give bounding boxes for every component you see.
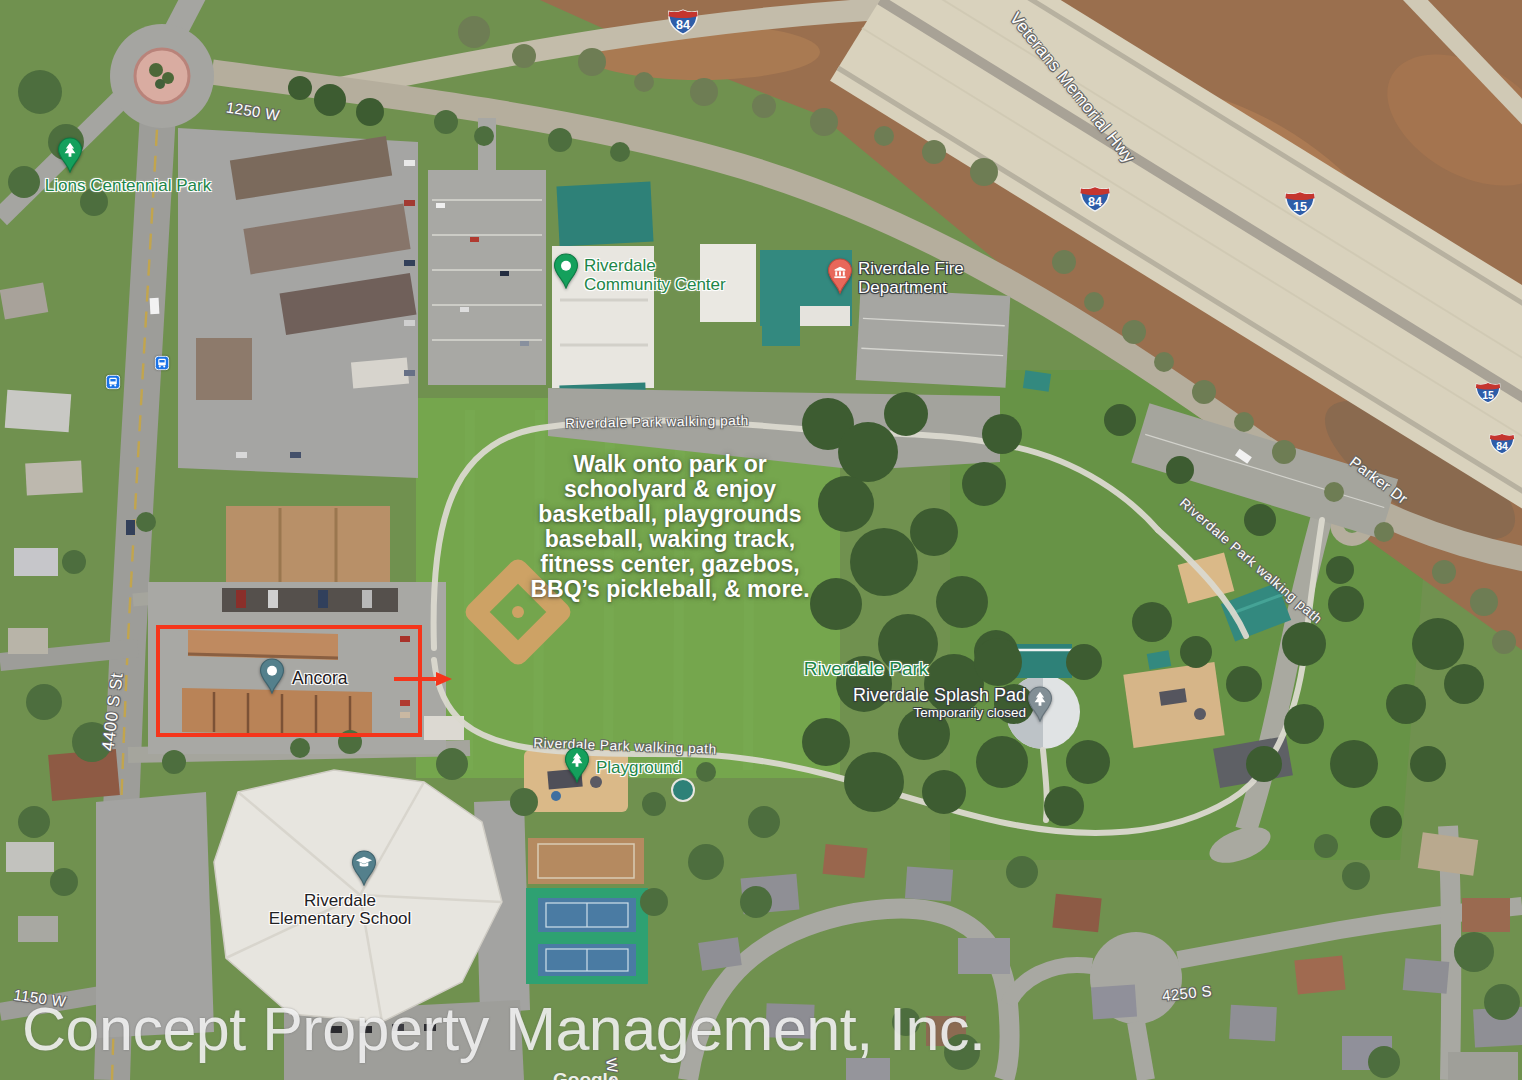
- svg-text:84: 84: [676, 18, 690, 32]
- route-shield-i84-north: 84: [666, 6, 700, 36]
- ancora-label[interactable]: Ancora: [292, 669, 347, 688]
- map-pin-icon: [553, 253, 579, 289]
- playground-pin[interactable]: [564, 747, 590, 783]
- svg-text:84: 84: [1496, 440, 1508, 452]
- route-shield-i15-hwy: 15: [1283, 188, 1317, 218]
- route-shield-i15-east: 15: [1474, 380, 1502, 405]
- watermark: Concept Property Management, Inc.: [22, 994, 985, 1064]
- interstate-shield-icon: 15: [1283, 188, 1317, 218]
- route-shield-i84-hwy: 84: [1078, 183, 1112, 213]
- splash-pad-pin[interactable]: [1027, 686, 1053, 722]
- interstate-shield-icon: 15: [1474, 380, 1502, 405]
- svg-text:15: 15: [1293, 200, 1307, 214]
- map-pin-icon: [57, 137, 83, 173]
- route-shield-i84-east: 84: [1488, 431, 1516, 456]
- bus-stop-icon[interactable]: [155, 356, 170, 371]
- splash-pad-status: Temporarily closed: [761, 705, 1026, 721]
- elementary-school-pin[interactable]: [351, 850, 377, 886]
- ancora-pin[interactable]: [259, 658, 285, 694]
- lions-centennial-park-label[interactable]: Lions Centennial Park: [45, 176, 211, 196]
- walking-path-label-north: Riverdale Park walking path: [565, 413, 749, 431]
- map-pin-icon: [564, 747, 590, 783]
- ancora-highlight-arrow-icon: [392, 670, 454, 688]
- playground-label[interactable]: Playground: [596, 758, 682, 777]
- map-pin-icon: [259, 658, 285, 694]
- community-center-label[interactable]: Riverdale Community Center: [584, 256, 726, 294]
- satellite-map[interactable]: 1250 W Veterans Memorial Hwy Parker Dr 4…: [0, 0, 1522, 1080]
- dot-icon: [267, 666, 277, 676]
- riverdale-park-label[interactable]: Riverdale Park: [804, 658, 929, 680]
- interstate-shield-icon: 84: [1488, 431, 1516, 456]
- lions-centennial-park-pin[interactable]: [57, 137, 83, 173]
- community-center-pin[interactable]: [553, 253, 579, 289]
- ancora-highlight-box: [156, 625, 422, 737]
- fire-department-label[interactable]: Riverdale Fire Department: [858, 259, 964, 297]
- bus-stop-icon[interactable]: [106, 375, 121, 390]
- google-logo: Google: [553, 1069, 618, 1080]
- interstate-shield-icon: 84: [666, 6, 700, 36]
- map-pin-icon: [827, 258, 853, 294]
- svg-text:15: 15: [1482, 389, 1494, 401]
- marketing-overlay-text: Walk onto park or schoolyard & enjoy bas…: [530, 452, 809, 602]
- interstate-shield-icon: 84: [1078, 183, 1112, 213]
- map-pin-icon: [1027, 686, 1053, 722]
- fire-department-pin[interactable]: [827, 258, 853, 294]
- svg-text:84: 84: [1088, 195, 1102, 209]
- splash-pad-label[interactable]: Riverdale Splash Pad Temporarily closed: [761, 686, 1026, 721]
- map-pin-icon: [351, 850, 377, 886]
- elementary-school-label[interactable]: Riverdale Elementary School: [269, 892, 412, 928]
- dot-icon: [561, 261, 571, 271]
